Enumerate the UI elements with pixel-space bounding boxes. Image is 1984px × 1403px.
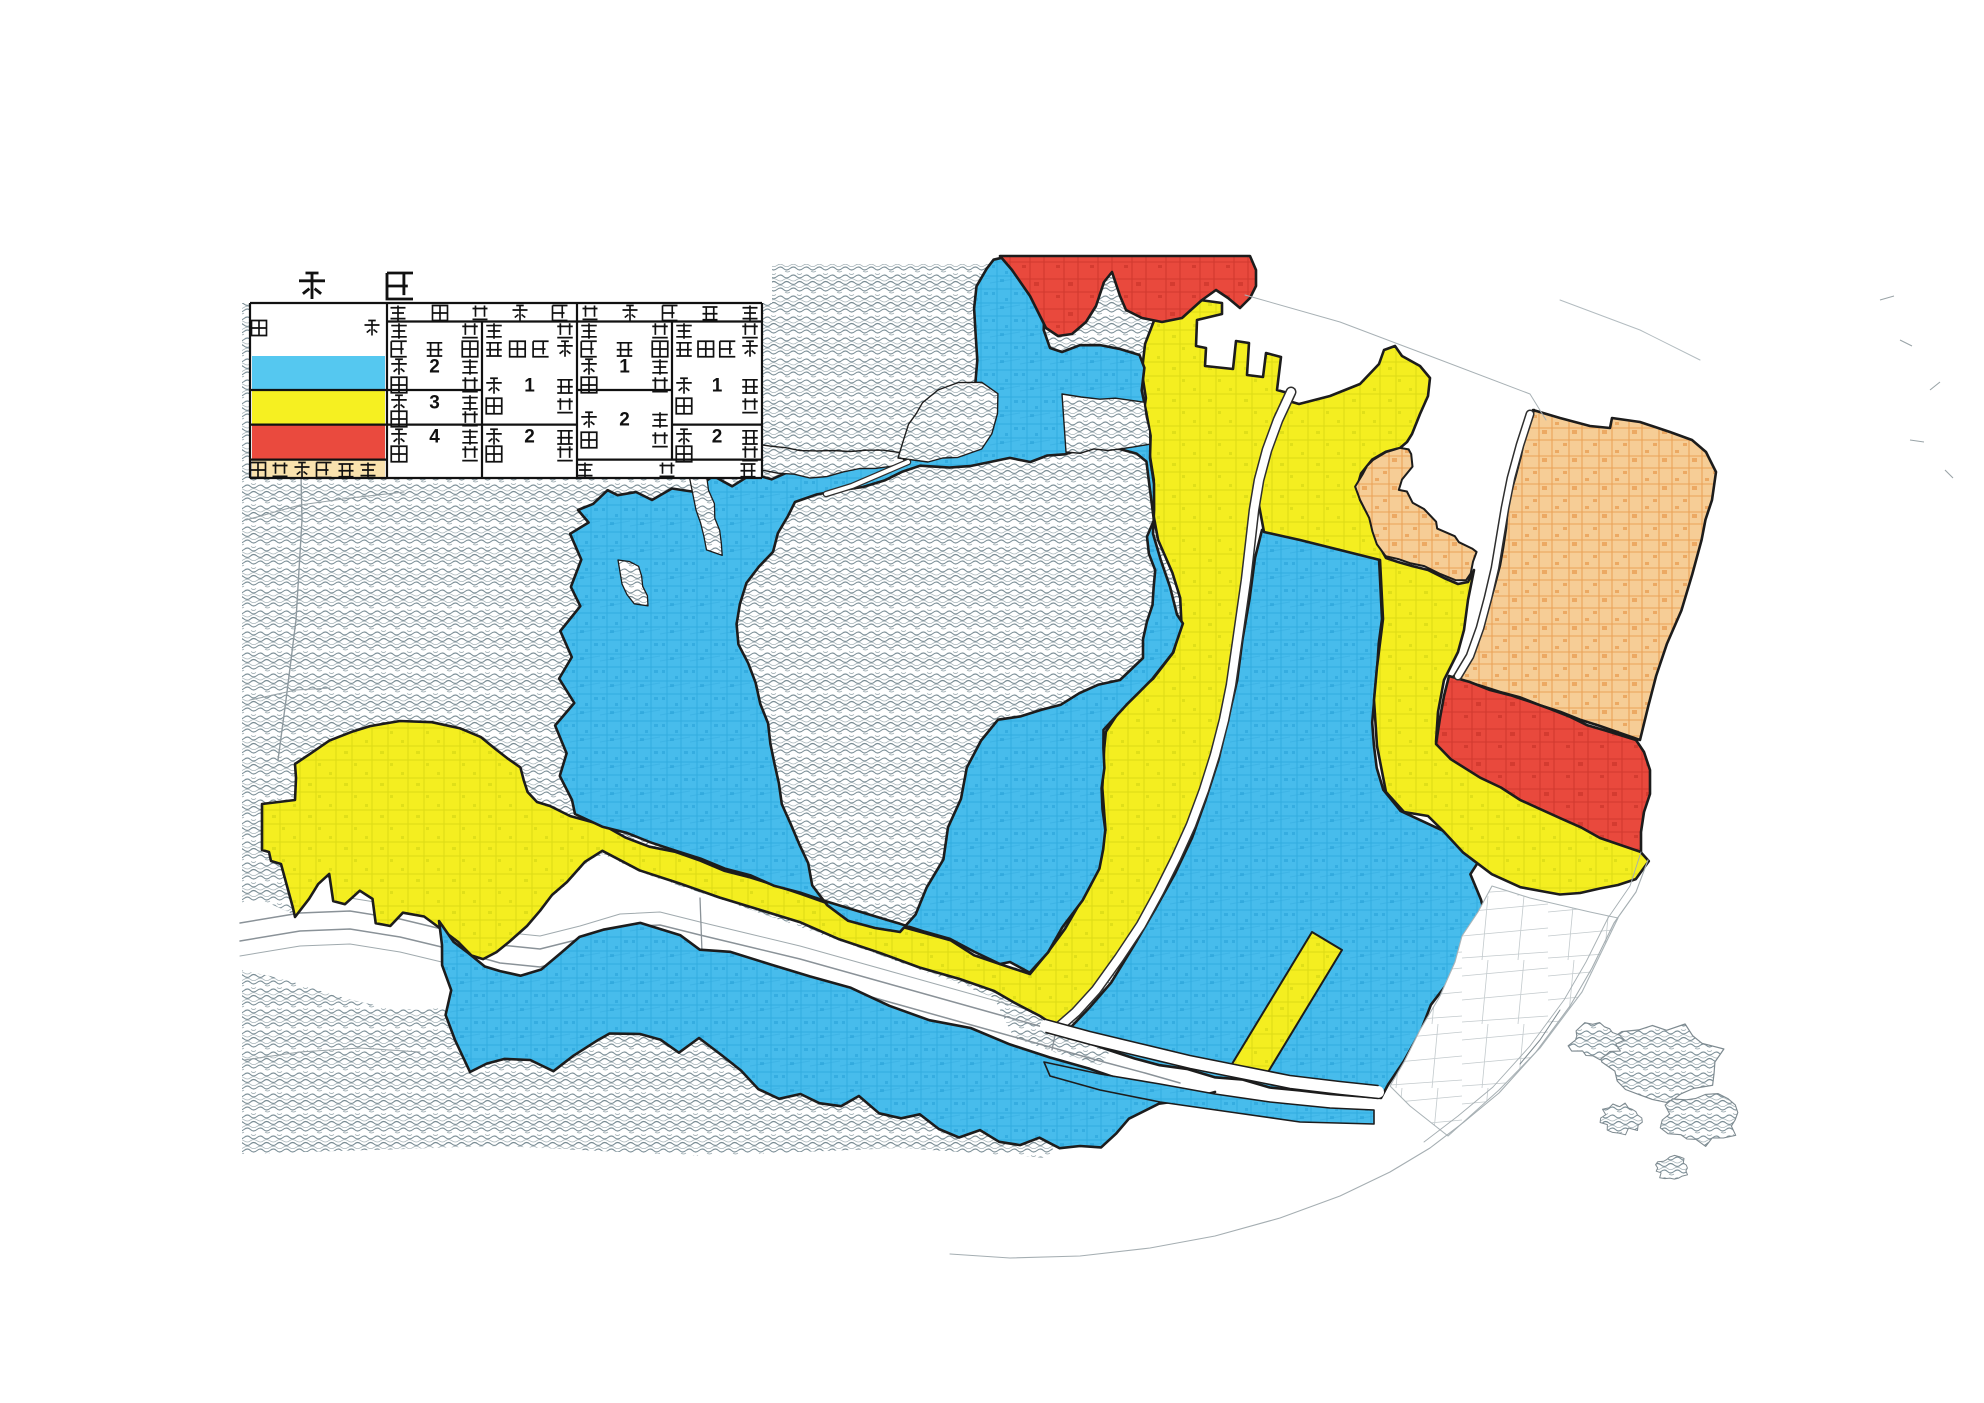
svg-text:2: 2 xyxy=(712,427,723,448)
svg-text:3: 3 xyxy=(429,393,440,414)
svg-text:2: 2 xyxy=(524,427,535,448)
svg-text:1: 1 xyxy=(524,376,535,397)
svg-text:2: 2 xyxy=(619,410,630,431)
svg-text:1: 1 xyxy=(712,376,723,397)
svg-text:2: 2 xyxy=(429,357,440,378)
svg-text:1: 1 xyxy=(619,357,630,378)
svg-text:4: 4 xyxy=(429,427,440,448)
